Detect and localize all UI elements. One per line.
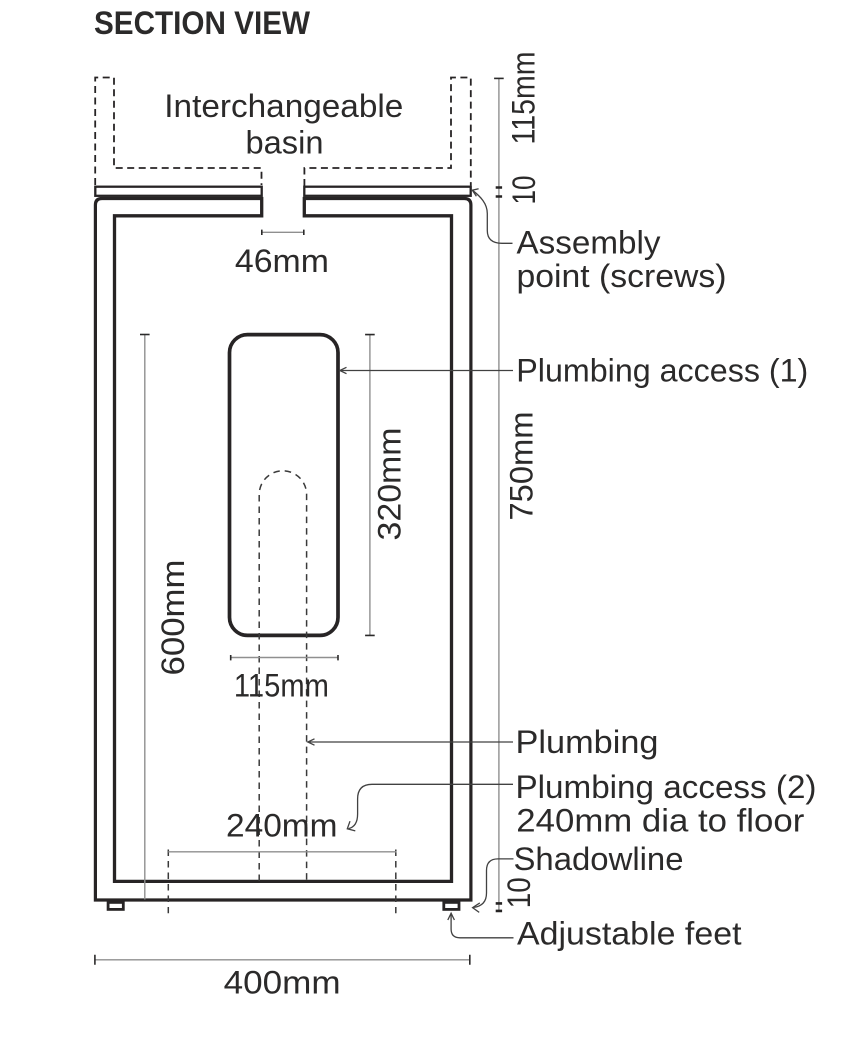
svg-text:10: 10 (506, 176, 542, 205)
svg-text:basin: basin (246, 125, 324, 161)
svg-text:Assembly: Assembly (517, 225, 662, 261)
svg-text:240mm dia to floor: 240mm dia to floor (516, 802, 804, 838)
svg-text:Interchangeable: Interchangeable (164, 88, 403, 124)
svg-text:600mm: 600mm (155, 560, 191, 676)
svg-text:SECTION VIEW: SECTION VIEW (94, 5, 311, 41)
svg-text:750mm: 750mm (504, 412, 540, 521)
svg-text:point (screws): point (screws) (517, 258, 727, 294)
svg-text:115mm: 115mm (506, 52, 542, 145)
svg-text:115mm: 115mm (234, 668, 329, 704)
svg-text:Adjustable feet: Adjustable feet (517, 916, 742, 952)
svg-text:Shadowline: Shadowline (514, 841, 684, 877)
svg-text:Plumbing: Plumbing (516, 724, 659, 760)
svg-text:240mm: 240mm (226, 808, 338, 844)
svg-text:320mm: 320mm (372, 428, 408, 541)
svg-text:10: 10 (501, 877, 537, 908)
svg-text:Plumbing access (1): Plumbing access (1) (516, 353, 808, 389)
svg-text:Plumbing access (2): Plumbing access (2) (516, 769, 817, 805)
svg-text:400mm: 400mm (224, 965, 341, 1001)
svg-text:46mm: 46mm (235, 243, 329, 279)
